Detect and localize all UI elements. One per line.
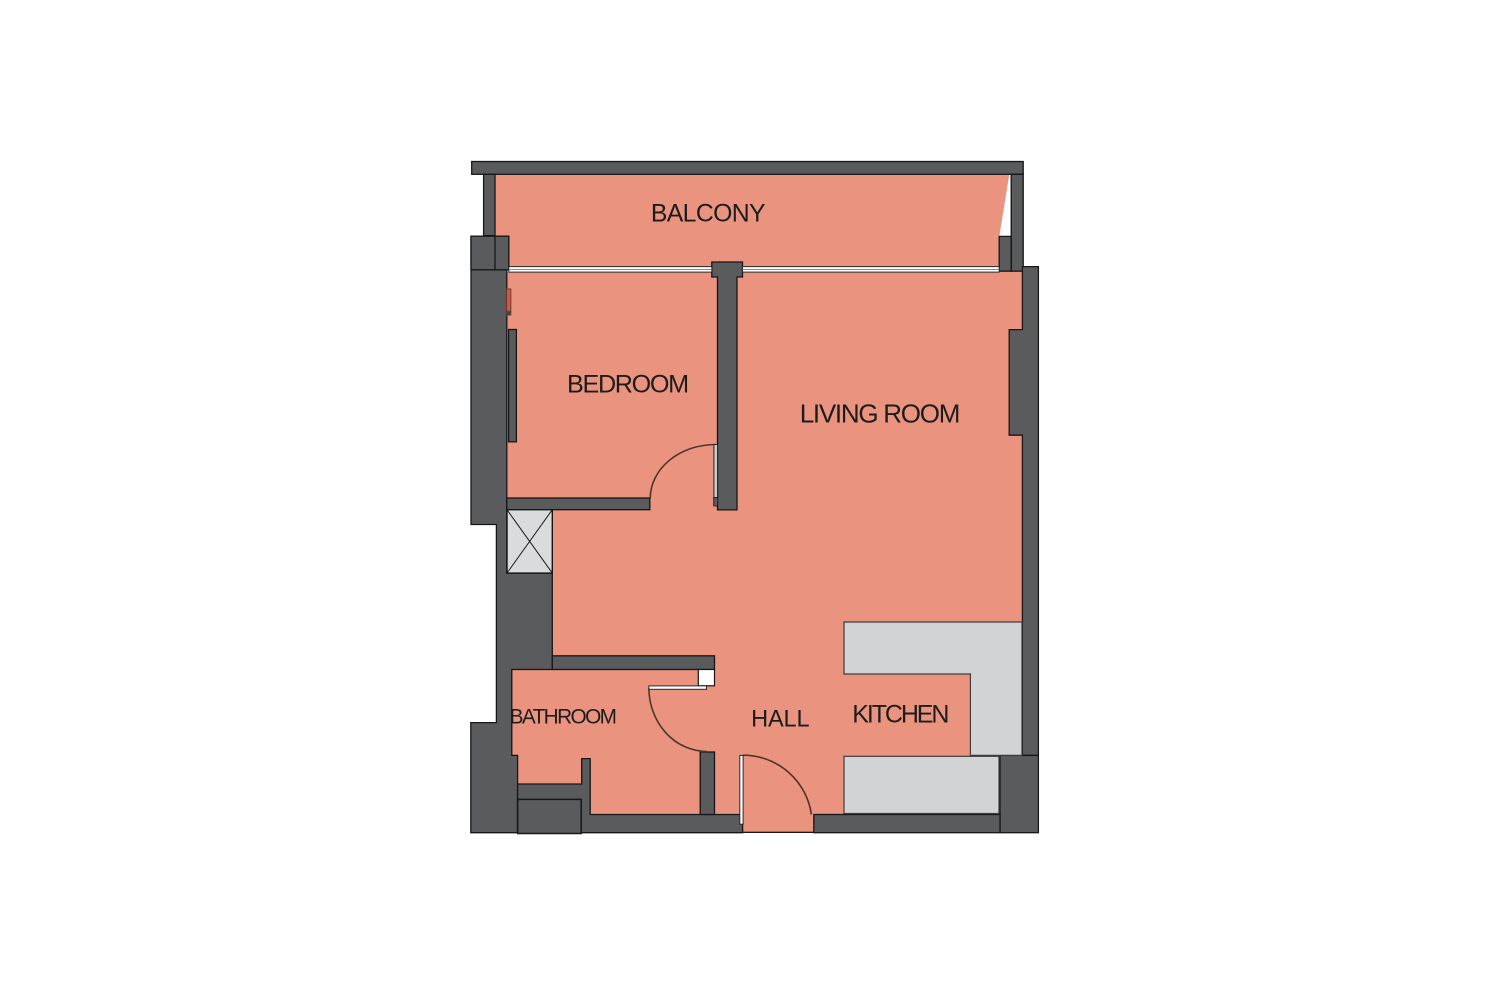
svg-text:HALL: HALL xyxy=(751,707,809,733)
svg-text:BEDROOM: BEDROOM xyxy=(567,371,688,399)
svg-text:BATHROOM: BATHROOM xyxy=(510,705,616,728)
svg-text:BALCONY: BALCONY xyxy=(651,201,765,228)
svg-text:KITCHEN: KITCHEN xyxy=(852,701,948,729)
svg-text:LIVING ROOM: LIVING ROOM xyxy=(800,398,959,428)
